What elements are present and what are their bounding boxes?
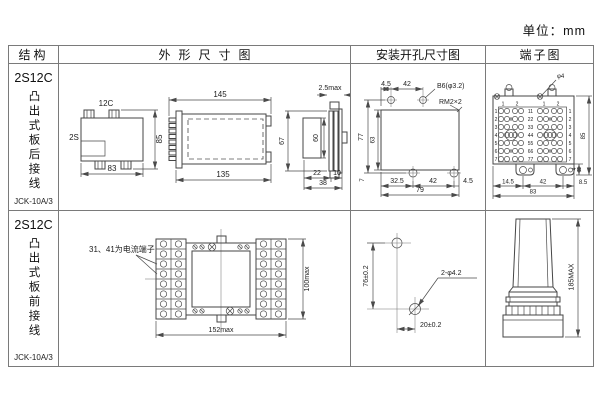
- row-num: 2: [495, 117, 498, 123]
- row-num: 33: [528, 125, 534, 131]
- install-cell-front: 76±0.2 2-φ4.2 20±0.2: [351, 211, 486, 366]
- row-num: 1: [495, 109, 498, 115]
- screw-callout: RM2×2: [439, 99, 462, 106]
- col-label: 2: [557, 102, 560, 108]
- dim-label: 7: [360, 178, 366, 182]
- structure-cell-front: 2S12C 凸出式板前接线 JCK-10A/3: [9, 211, 59, 366]
- row-num: 66: [528, 149, 534, 155]
- header-outline-dimensions: 外形尺寸图: [59, 46, 351, 64]
- dim-label: 4.5: [463, 178, 473, 185]
- dim-label: 63: [371, 136, 377, 143]
- outline-drawing-front: 31、41为电流端子: [59, 211, 351, 366]
- dim-label: 85: [581, 132, 587, 139]
- col-label: 1: [543, 102, 546, 108]
- dim-label: 145: [213, 90, 227, 99]
- dim-label: 14.5: [502, 180, 514, 186]
- dim-label: 4: [572, 167, 578, 170]
- terminal-cell-front: 185MAX: [486, 211, 593, 366]
- spec-table: 结构 外形尺寸图 安装开孔尺寸图 端子图 2S12C 凸出式板后接线 JCK-1…: [8, 45, 594, 367]
- hole-callout: 2-φ4.2: [441, 270, 462, 277]
- dim-label: 42: [540, 180, 547, 186]
- outline-cell-front: 31、41为电流端子: [59, 211, 351, 366]
- dim-label: 12C: [99, 99, 114, 108]
- dim-label: 8.5: [579, 180, 588, 186]
- dim-label: 67: [279, 137, 286, 145]
- outline-cell-rear: 12C 2S 83 85: [59, 64, 351, 211]
- unit-note: 单位：mm: [523, 20, 586, 39]
- row-num: 77: [528, 157, 534, 163]
- row-num: 5: [569, 141, 572, 147]
- dim-label: 77: [358, 133, 365, 141]
- col-label: 2: [516, 102, 519, 108]
- relay-code: JCK-10A/3: [14, 197, 53, 206]
- dimensions: 152max 100max: [156, 239, 311, 338]
- dim-label: 185MAX: [569, 263, 576, 290]
- mounting-hole-drawing-front: 76±0.2 2-φ4.2 20±0.2: [351, 211, 486, 366]
- row-num: 22: [528, 117, 534, 123]
- dim-label: 22: [313, 170, 321, 177]
- row-num: 7: [495, 157, 498, 163]
- dim-label: 42: [429, 178, 437, 185]
- model-name: 2S12C: [14, 71, 52, 85]
- dim-label: 76±0.2: [363, 265, 370, 286]
- dim-label: 85: [155, 134, 164, 143]
- relay-code: JCK-10A/3: [14, 353, 53, 362]
- row-num: 4: [569, 133, 572, 139]
- row-num: 1: [569, 109, 572, 115]
- row-num: 6: [495, 149, 498, 155]
- hole-callout: φ4: [557, 74, 565, 80]
- front-wiring-view: [145, 229, 286, 333]
- row-num: 44: [528, 133, 534, 139]
- side-view: 145 135: [169, 90, 271, 183]
- dimensions: 76±0.2 2-φ4.2 20±0.2: [363, 243, 477, 329]
- install-cell-rear: 4.5 42 B6(φ3.2) RM2×2 77 63 7: [351, 64, 486, 211]
- row-num: 2: [569, 117, 572, 123]
- row-num: 11: [528, 109, 533, 115]
- structure-cell-rear: 2S12C 凸出式板后接线 JCK-10A/3: [9, 64, 59, 211]
- row-num: 55: [528, 141, 534, 147]
- dim-label: 4.5: [381, 81, 391, 88]
- mounting-hole-drawing-rear: 4.5 42 B6(φ3.2) RM2×2 77 63 7: [351, 64, 486, 211]
- dim-label: 100max: [304, 266, 311, 291]
- dim-label: 20±0.2: [420, 322, 441, 329]
- row-num: 7: [569, 157, 572, 163]
- current-terminal-note: 31、41为电流端子: [89, 244, 155, 254]
- dim-label: 135: [216, 170, 230, 179]
- dim-label: 10: [333, 170, 341, 177]
- row-num: 3: [569, 125, 572, 131]
- holes: [367, 233, 429, 333]
- header-terminal-diagram: 端子图: [486, 46, 593, 64]
- dim-label: 32.5: [390, 178, 404, 185]
- front-view: 12C 2S 83 85: [69, 99, 164, 177]
- col-label: 1: [502, 102, 505, 108]
- outline-drawing-rear: 12C 2S 83 85: [59, 64, 351, 211]
- row-num: 3: [495, 125, 498, 131]
- dim-label: 38: [319, 180, 327, 187]
- drawing-sheet: 单位：mm 结构 外形尺寸图 安装开孔尺寸图 端子图 2S12C 凸出式板后接线…: [0, 0, 600, 400]
- terminal-plate: φ4: [493, 74, 574, 175]
- mount-type-label: 凸出式板后接线: [26, 90, 42, 195]
- dim-label: 60: [313, 134, 320, 142]
- row-num: 5: [495, 141, 498, 147]
- model-name: 2S12C: [14, 218, 52, 232]
- relay-profile: [503, 219, 563, 337]
- hole-callout: B6(φ3.2): [437, 83, 465, 90]
- dim-label: 83: [108, 164, 117, 173]
- mount-type-label: 凸出式板前接线: [26, 237, 42, 351]
- dim-label: 2S: [69, 133, 79, 142]
- dim-label: 152max: [209, 327, 234, 334]
- terminal-cell-rear: φ4 1 2 1 2: [486, 64, 593, 211]
- side-profile-drawing: 185MAX: [486, 211, 593, 366]
- row-num: 4: [495, 133, 498, 139]
- dimensions: 4.5 42 B6(φ3.2) RM2×2 77 63 7: [358, 81, 473, 197]
- terminal-diagram-rear: φ4 1 2 1 2: [486, 64, 593, 211]
- dim-label: 42: [403, 81, 411, 88]
- dimensions: 185MAX: [552, 219, 581, 337]
- row-num: 6: [569, 149, 572, 155]
- header-structure: 结构: [9, 46, 59, 64]
- edge-view: 67 60 2.5max 22 10 38: [279, 85, 350, 190]
- dim-label: 83: [530, 190, 537, 196]
- header-mounting-holes: 安装开孔尺寸图: [351, 46, 486, 64]
- dim-label: 2.5max: [319, 85, 342, 92]
- terminal-grid: 1 2 1 2: [495, 102, 572, 164]
- dim-label: 79: [416, 187, 424, 194]
